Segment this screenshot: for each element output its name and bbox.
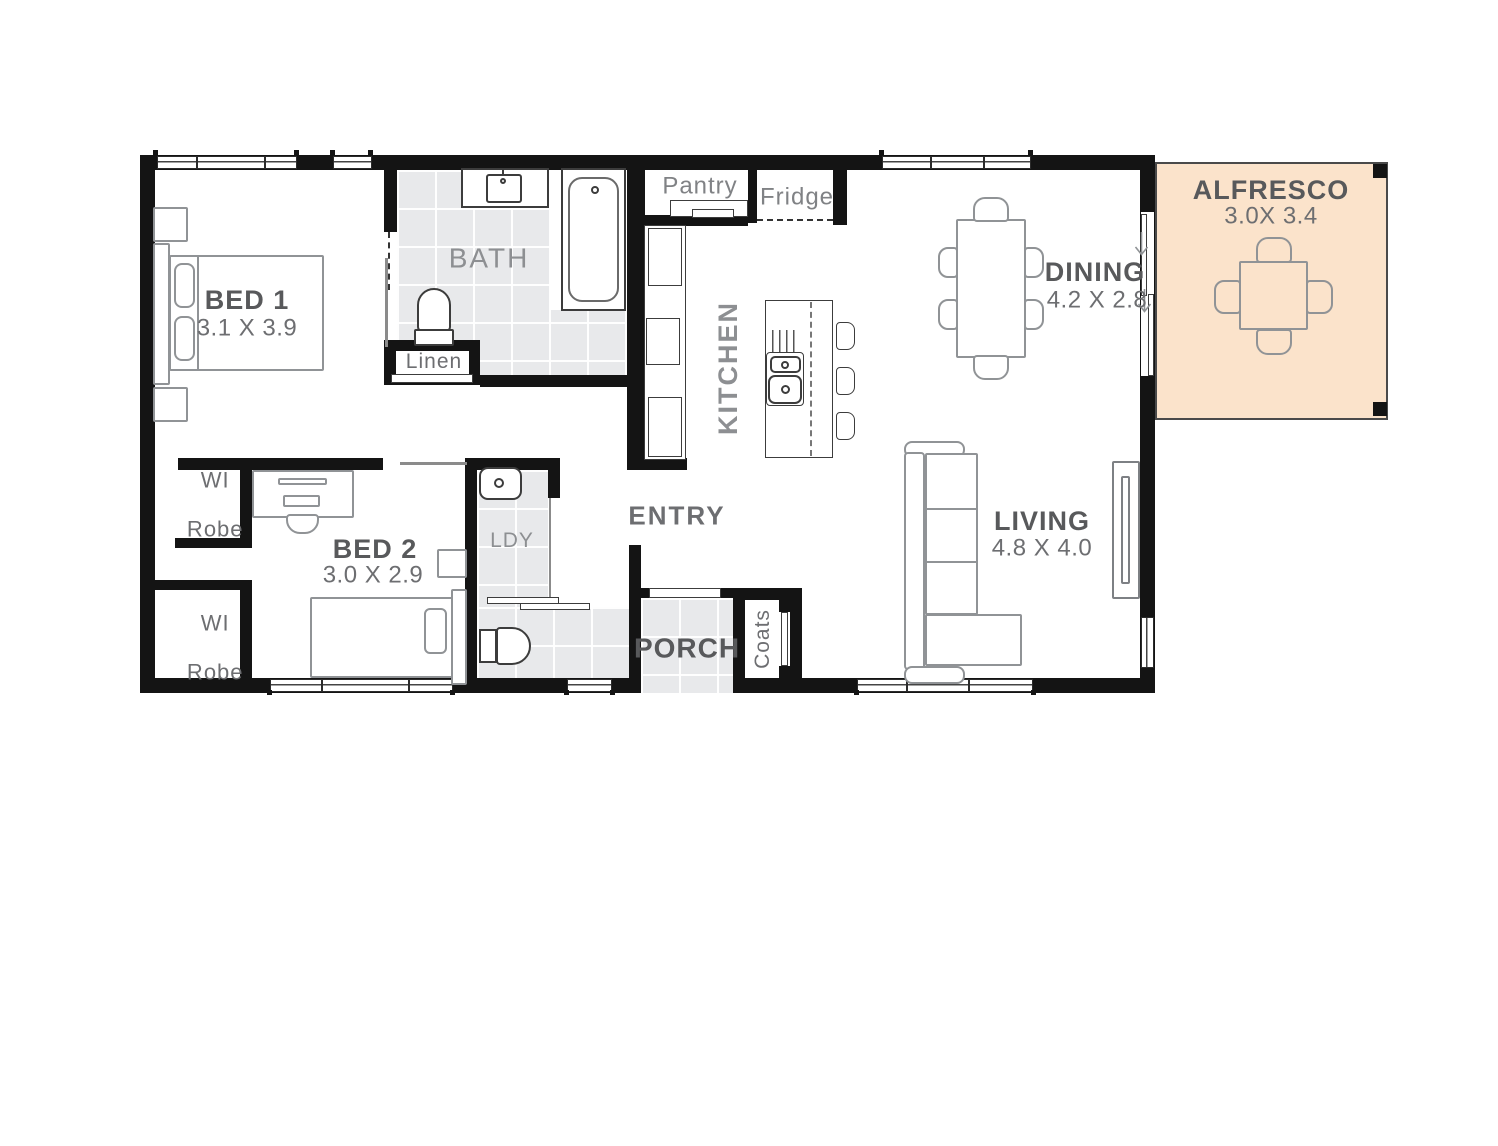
window-tick [267, 690, 272, 695]
living-label: LIVING [994, 506, 1090, 536]
bed1-nightstand-top [153, 207, 188, 242]
bed2-headboard [451, 589, 467, 685]
ldy-door-leaf [549, 498, 551, 598]
bed2-desk-chair [286, 514, 319, 534]
robe1-line2: Robe [187, 516, 244, 541]
floor-plan: BED 1 3.1 X 3.9 BED 2 3.0 X 2.9 BATH Pan… [0, 0, 1498, 1146]
wall-ldy-right-stub [548, 458, 560, 498]
alfresco-label: ALFRESCO [1193, 175, 1350, 205]
bed2-keyboard [283, 495, 320, 507]
window-tick [879, 150, 884, 155]
window-mullion [983, 157, 985, 168]
wc-sliding-door-b [520, 603, 590, 610]
bed2-monitor [278, 478, 327, 485]
window-tick [368, 150, 373, 155]
entry-label: ENTRY [628, 501, 725, 530]
alfresco-table [1239, 261, 1308, 330]
island-stool-3 [836, 412, 855, 440]
dining-chair-left-2 [938, 299, 958, 330]
robe2-label: WI Robe [158, 586, 243, 709]
window-tick [610, 690, 615, 695]
alfresco-chair-bottom [1256, 329, 1292, 355]
window-wc-bottom [567, 679, 612, 692]
tv-panel [1121, 476, 1130, 584]
window-tick [153, 150, 158, 155]
island-stool-2 [836, 367, 855, 395]
window-mullion [321, 680, 323, 691]
robe1-line1: WI [201, 467, 230, 492]
bath-toilet-base [414, 329, 454, 346]
robe2-line2: Robe [187, 659, 244, 684]
dining-chair-left-1 [938, 247, 958, 278]
bed2-label: BED 2 [333, 534, 418, 564]
sofa-back [904, 452, 925, 670]
island-stool-1 [836, 322, 855, 350]
dining-table [956, 219, 1026, 358]
window-tick [1028, 150, 1033, 155]
coats-label: Coats [751, 609, 775, 669]
bath-door-opening [388, 232, 390, 290]
bed1-dims: 3.1 X 3.9 [197, 316, 298, 343]
bed2-dims: 3.0 X 2.9 [323, 563, 424, 590]
window-tick [854, 690, 859, 695]
bed2-door-leaf [400, 462, 467, 465]
sofa-cushions [925, 453, 978, 615]
island-drain-dot-b [781, 385, 790, 394]
bath-label: BATH [449, 242, 530, 273]
dining-dims: 4.2 X 2.8 [1047, 288, 1148, 315]
kitchen-cooktop [646, 318, 680, 365]
fridge-label: Fridge [760, 185, 834, 212]
robe2-line1: WI [201, 610, 230, 635]
alfresco-post-top [1373, 164, 1387, 178]
window-mullion [408, 680, 410, 691]
sofa-arm-bottom [904, 666, 965, 684]
door-arrow-top [1134, 230, 1149, 257]
alfresco-chair-top [1256, 237, 1292, 263]
bath-tap-dot [500, 178, 506, 184]
window-bed1-top [157, 156, 297, 169]
window-mullion [264, 157, 266, 168]
porch-label: PORCH [634, 632, 740, 663]
kitchen-oven [648, 228, 682, 286]
window-dining-top [882, 156, 1031, 169]
window-tick [1031, 690, 1036, 695]
bed1-pillow-top [174, 263, 195, 308]
window-tick [294, 150, 299, 155]
wall-wc-porch [629, 545, 641, 693]
dining-chair-right-2 [1024, 299, 1044, 330]
wall-coats-right [790, 588, 802, 693]
bed1-pillow-bottom [174, 316, 195, 361]
wall-porch-top-b [720, 588, 733, 598]
window-bath-top [333, 156, 372, 169]
window-mullion [196, 157, 198, 168]
laundry-tub-drain [494, 478, 504, 488]
bed2-pillow [424, 608, 447, 654]
dining-label: DINING [1045, 257, 1146, 287]
window-mullion [968, 680, 970, 691]
wall-pantry-fridge [748, 155, 757, 223]
bed1-headboard [153, 243, 170, 385]
linen-label: Linen [406, 350, 462, 374]
bathtub-tap-dot [591, 186, 599, 194]
sofa-cushion-line-1 [927, 508, 976, 510]
island-overhang-line [810, 302, 812, 456]
alfresco-post-bottom [1373, 402, 1387, 416]
coats-door-post-top [779, 598, 790, 612]
window-bed2-bottom [270, 679, 453, 692]
wall-bed1-bath [384, 155, 397, 232]
window-tick [564, 690, 569, 695]
dining-chair-bottom [973, 355, 1009, 380]
coats-door-post-bottom [779, 666, 790, 682]
alfresco-chair-right [1306, 280, 1333, 314]
laundry-label: LDY [490, 529, 534, 553]
linen-shelf [391, 374, 473, 383]
wall-fridge-right [833, 155, 847, 225]
wc-cistern [479, 629, 497, 663]
window-tick [450, 690, 455, 695]
pantry-label: Pantry [662, 174, 737, 201]
bed2-nightstand [437, 549, 467, 578]
sofa-cushion-line-2 [927, 561, 976, 563]
bed1-blanket-line [197, 257, 199, 369]
bath-tap [502, 168, 504, 176]
bath-toilet-bowl [417, 288, 451, 332]
bathtub-inner [568, 177, 619, 302]
window-living-right [1141, 617, 1154, 668]
dining-chair-right-1 [1024, 247, 1044, 278]
sofa-chaise [925, 614, 1022, 666]
island-drainer [772, 330, 800, 352]
alfresco-chair-left [1214, 280, 1241, 314]
pantry-shelf-step [692, 209, 734, 218]
bed1-label: BED 1 [205, 285, 290, 315]
dining-chair-top [973, 197, 1009, 222]
window-tick [330, 150, 335, 155]
alfresco-dims: 3.0X 3.4 [1224, 204, 1317, 231]
robe1-label: WI Robe [158, 443, 243, 566]
living-dims: 4.8 X 4.0 [992, 536, 1093, 563]
coats-door-leaf [781, 612, 788, 666]
bed1-nightstand-bottom [153, 387, 188, 422]
wall-bath-bottom [480, 375, 627, 387]
entry-door [649, 588, 721, 598]
kitchen-cabinet [648, 397, 682, 457]
bath-door-leaf [385, 258, 388, 347]
fridge-dashed-line [757, 219, 833, 221]
kitchen-label: KITCHEN [713, 301, 743, 435]
island-drain-dot-a [781, 361, 789, 369]
window-mullion [930, 157, 932, 168]
